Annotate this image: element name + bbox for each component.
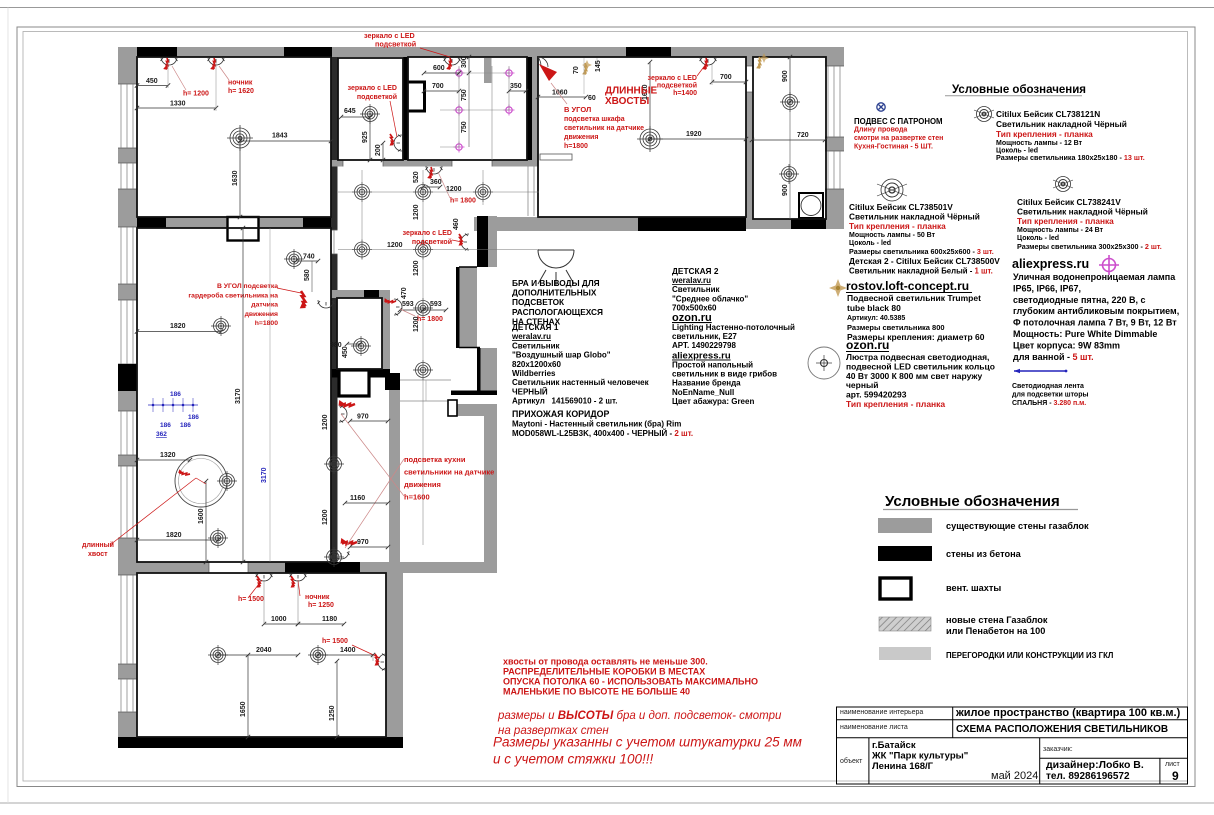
svg-text:IP65, IP66, IP67,: IP65, IP66, IP67, — [1013, 283, 1081, 293]
svg-text:h= 1800: h= 1800 — [450, 198, 476, 205]
svg-text:Wildberries: Wildberries — [512, 369, 556, 378]
svg-text:700: 700 — [432, 83, 444, 90]
svg-text:лист: лист — [1165, 761, 1180, 768]
svg-text:глубоким антибликовым покрытие: глубоким антибликовым покрытием, — [1013, 306, 1179, 316]
svg-text:ОПУСКА ПОТОЛКА 60 - ИСПОЛЬЗОВА: ОПУСКА ПОТОЛКА 60 - ИСПОЛЬЗОВАТЬ МАКСИМА… — [503, 677, 758, 687]
svg-text:светодиодные пятна, 220 В, с: светодиодные пятна, 220 В, с — [1013, 295, 1146, 305]
svg-text:186: 186 — [188, 414, 199, 421]
svg-text:Светильник накладной Чёрный: Светильник накладной Чёрный — [996, 119, 1127, 129]
svg-text:подсветкой: подсветкой — [375, 40, 416, 49]
svg-text:наименование листа: наименование листа — [840, 724, 908, 731]
svg-text:движения: движения — [564, 134, 598, 141]
svg-text:г.Батайск: г.Батайск — [872, 740, 916, 751]
svg-text:Мощность лампы - 12 Вт: Мощность лампы - 12 Вт — [996, 140, 1083, 147]
svg-text:925: 925 — [362, 131, 369, 143]
svg-text:1920: 1920 — [686, 131, 702, 138]
svg-text:Размеры светильника 300x25x300: Размеры светильника 300x25x300 - 2 шт. — [1017, 242, 1162, 251]
svg-text:350: 350 — [510, 83, 522, 90]
svg-text:450: 450 — [342, 346, 349, 358]
svg-text:май 2024: май 2024 — [991, 770, 1038, 782]
svg-text:тел. 89286196572: тел. 89286196572 — [1046, 771, 1130, 782]
svg-text:980: 980 — [330, 342, 342, 349]
svg-text:Название бренда: Название бренда — [672, 379, 741, 388]
svg-text:h= 1500: h= 1500 — [322, 638, 348, 645]
svg-text:ЧЕРНЫЙ: ЧЕРНЫЙ — [512, 387, 548, 396]
svg-text:СПАЛЬНЯ - 3.280 п.м.: СПАЛЬНЯ - 3.280 п.м. — [1012, 400, 1086, 407]
svg-text:h= 1500: h= 1500 — [238, 596, 264, 603]
svg-text:1600: 1600 — [198, 508, 205, 524]
svg-text:Цоколь - led: Цоколь - led — [1017, 235, 1059, 242]
svg-text:MOD058WL-L25B3K, 400x400 - ЧЕР: MOD058WL-L25B3K, 400x400 - ЧЕРНЫЙ - 2 шт… — [512, 429, 693, 438]
svg-text:арт. 599420293: арт. 599420293 — [846, 390, 907, 400]
svg-text:Светильник настенный человечек: Светильник настенный человечек — [512, 378, 650, 387]
svg-text:вент. шахты: вент. шахты — [946, 583, 1001, 593]
svg-text:ХВОСТЫ: ХВОСТЫ — [605, 96, 650, 107]
svg-text:1650: 1650 — [240, 701, 247, 717]
svg-text:NoEnName_Null: NoEnName_Null — [672, 388, 734, 397]
svg-text:черный: черный — [846, 380, 878, 390]
svg-text:Простой напольный: Простой напольный — [672, 361, 753, 370]
svg-text:БРА И ВЫВОДЫ ДЛЯ: БРА И ВЫВОДЫ ДЛЯ — [512, 278, 600, 288]
svg-text:h= 1620: h= 1620 — [228, 88, 254, 95]
svg-text:Условные обозначения: Условные обозначения — [952, 84, 1086, 96]
svg-text:200: 200 — [375, 144, 382, 156]
svg-text:aliexpress.ru: aliexpress.ru — [1012, 257, 1089, 271]
svg-text:Условные обозначения: Условные обозначения — [885, 493, 1060, 510]
svg-text:для ванной - 5 шт.: для ванной - 5 шт. — [1013, 352, 1094, 362]
svg-text:186: 186 — [180, 422, 191, 429]
svg-text:1200: 1200 — [413, 204, 420, 220]
svg-text:Размеры светильника 600x25x600: Размеры светильника 600x25x600 - 3 шт. — [849, 247, 994, 256]
svg-text:3170: 3170 — [261, 467, 268, 483]
svg-text:Ф потолочная лампа 7 Вт, 9 Вт,: Ф потолочная лампа 7 Вт, 9 Вт, 12 Вт — [1013, 318, 1177, 328]
svg-text:хвосты от провода оставлять не: хвосты от провода оставлять не меньше 30… — [503, 657, 708, 667]
svg-text:9: 9 — [1172, 769, 1179, 783]
svg-text:Светильник накладной Белый - 1: Светильник накладной Белый - 1 шт. — [849, 267, 993, 276]
svg-text:ozon.ru: ozon.ru — [846, 338, 889, 352]
svg-text:Тип крепления - планка: Тип крепления - планка — [849, 221, 946, 231]
svg-text:580: 580 — [304, 269, 311, 281]
svg-text:Citilux Бейсик CL738121N: Citilux Бейсик CL738121N — [996, 109, 1100, 119]
svg-text:1200: 1200 — [413, 316, 420, 332]
svg-text:светильник в виде грибов: светильник в виде грибов — [672, 370, 777, 379]
svg-text:1200: 1200 — [413, 260, 420, 276]
svg-text:зеркало с LED: зеркало с LED — [648, 75, 697, 82]
svg-text:1400: 1400 — [340, 647, 356, 654]
svg-text:зеркало с LED: зеркало с LED — [403, 230, 452, 237]
svg-text:движения: движения — [245, 311, 278, 318]
svg-text:750: 750 — [461, 121, 468, 133]
svg-text:460: 460 — [453, 218, 460, 230]
svg-text:ночник: ночник — [228, 80, 253, 87]
svg-text:объект: объект — [840, 757, 863, 765]
svg-text:подсветкой: подсветкой — [412, 238, 452, 246]
svg-text:900: 900 — [782, 70, 789, 82]
svg-text:Тип крепления - планка: Тип крепления - планка — [1017, 216, 1114, 226]
svg-text:Детская 2 - Citilux Бейсик CL7: Детская 2 - Citilux Бейсик CL738500V — [849, 256, 1000, 266]
svg-text:Тип крепления - планка: Тип крепления - планка — [846, 399, 945, 409]
svg-text:h=1800: h=1800 — [564, 143, 588, 150]
svg-text:смотри на развертке стен: смотри на развертке стен — [854, 135, 943, 142]
svg-text:В УГОЛ подсветка: В УГОЛ подсветка — [217, 283, 278, 290]
svg-text:70: 70 — [573, 66, 580, 74]
svg-text:В УГОЛ: В УГОЛ — [564, 105, 591, 114]
svg-text:Подвесной светильник Trumpet: Подвесной светильник Trumpet — [847, 293, 981, 303]
svg-text:Мощность лампы - 50 Вт: Мощность лампы - 50 Вт — [849, 232, 936, 239]
svg-text:h=1400: h=1400 — [673, 90, 697, 97]
svg-text:1200: 1200 — [322, 509, 329, 525]
svg-text:светильники на датчике: светильники на датчике — [404, 468, 494, 477]
svg-text:tube black 80: tube black 80 — [847, 303, 901, 313]
svg-text:подсветкой: подсветкой — [657, 82, 697, 90]
svg-text:h=1600: h=1600 — [404, 493, 430, 502]
svg-text:645: 645 — [344, 108, 356, 115]
svg-text:h= 1200: h= 1200 — [183, 91, 209, 98]
svg-text:новые стена Газаблок: новые стена Газаблок — [946, 615, 1048, 625]
svg-text:светильник, E27: светильник, E27 — [672, 332, 737, 341]
svg-text:заказчик:: заказчик: — [1043, 746, 1073, 753]
svg-text:длинный: длинный — [82, 541, 114, 549]
svg-text:ПРИХОЖАЯ КОРИДОР: ПРИХОЖАЯ КОРИДОР — [512, 409, 609, 419]
svg-text:Размеры указанны с учетом шту: Размеры указанны с учетом штукатурки 25 … — [493, 735, 802, 750]
svg-text:Размеры светильника 800: Размеры светильника 800 — [847, 323, 945, 332]
svg-text:1000: 1000 — [271, 616, 287, 623]
svg-text:3170: 3170 — [235, 388, 242, 404]
svg-text:жилое пространство (квартира 1: жилое пространство (квартира 100 кв.м.) — [955, 707, 1181, 719]
svg-text:weralav.ru: weralav.ru — [671, 276, 711, 285]
svg-text:470: 470 — [401, 287, 408, 299]
svg-text:186: 186 — [160, 422, 171, 429]
svg-text:Ленина 168/Г: Ленина 168/Г — [872, 761, 934, 772]
svg-text:Светильник: Светильник — [672, 285, 721, 294]
svg-text:ДОПОЛНИТЕЛЬНЫХ: ДОПОЛНИТЕЛЬНЫХ — [512, 288, 597, 298]
svg-text:РАСПРЕДЕЛИТЕЛЬНЫЕ КОРОБКИ В МЕ: РАСПРЕДЕЛИТЕЛЬНЫЕ КОРОБКИ В МЕСТАХ — [503, 667, 705, 677]
svg-text:зеркало с LED: зеркало с LED — [348, 85, 397, 92]
svg-text:РАСПОЛОГАЮЩЕХСЯ: РАСПОЛОГАЮЩЕХСЯ — [512, 307, 603, 317]
svg-text:h= 1800: h= 1800 — [417, 316, 443, 323]
svg-text:для подсветки шторы: для подсветки шторы — [1012, 392, 1088, 399]
svg-text:подсветка кухни: подсветка кухни — [404, 455, 466, 464]
svg-text:Citilux Бейсик CL738501V: Citilux Бейсик CL738501V — [849, 202, 953, 212]
svg-text:хвост: хвост — [88, 551, 108, 558]
svg-text:СХЕМА РАСПОЛОЖЕНИЯ СВЕТИЛЬНИКО: СХЕМА РАСПОЛОЖЕНИЯ СВЕТИЛЬНИКОВ — [956, 724, 1168, 735]
svg-text:"Среднее облачко": "Среднее облачко" — [672, 294, 748, 303]
svg-text:датчика: датчика — [251, 302, 278, 309]
svg-text:145: 145 — [595, 60, 602, 72]
svg-text:размеры и ВЫСОТЫ бра и доп. по: размеры и ВЫСОТЫ бра и доп. подсветок- с… — [497, 710, 782, 722]
svg-text:1320: 1320 — [160, 452, 176, 459]
svg-text:Люстра подвесная светодиодная,: Люстра подвесная светодиодная, — [846, 352, 989, 362]
svg-text:360: 360 — [430, 179, 442, 186]
svg-text:520: 520 — [413, 171, 420, 183]
svg-text:ДЕТСКАЯ 2: ДЕТСКАЯ 2 — [672, 266, 719, 276]
svg-text:450: 450 — [146, 78, 158, 85]
svg-text:Светильник накладной Чёрный: Светильник накладной Чёрный — [849, 212, 980, 222]
svg-text:1200: 1200 — [387, 242, 403, 249]
svg-text:1820: 1820 — [166, 532, 182, 539]
svg-text:970: 970 — [357, 414, 369, 421]
svg-text:720: 720 — [797, 132, 809, 139]
svg-text:АРТ. 1490229798: АРТ. 1490229798 — [672, 341, 736, 350]
svg-text:Maytoni - Настенный светильник: Maytoni - Настенный светильник (бра) Rim — [512, 420, 681, 429]
svg-text:или Пенабетон на 100: или Пенабетон на 100 — [946, 626, 1045, 636]
svg-text:ночник: ночник — [305, 594, 330, 601]
svg-text:ПЕРЕГОРОДКИ ИЛИ КОНСТРУКЦИИ ИЗ: ПЕРЕГОРОДКИ ИЛИ КОНСТРУКЦИИ ИЗ ГКЛ — [946, 651, 1113, 660]
svg-text:750: 750 — [461, 89, 468, 101]
svg-text:h=1800: h=1800 — [255, 320, 278, 327]
svg-text:Уличная водонепроницаемая ламп: Уличная водонепроницаемая лампа — [1013, 272, 1176, 282]
svg-text:593: 593 — [430, 301, 442, 308]
svg-text:ПОДСВЕТОК: ПОДСВЕТОК — [512, 297, 565, 307]
svg-text:1060: 1060 — [552, 90, 568, 97]
svg-text:Светильник: Светильник — [512, 341, 561, 350]
svg-text:ПОДВЕС С ПАТРОНОМ: ПОДВЕС С ПАТРОНОМ — [854, 117, 943, 126]
svg-text:60: 60 — [588, 95, 596, 102]
svg-text:593: 593 — [402, 301, 414, 308]
svg-text:weralav.ru: weralav.ru — [511, 332, 551, 341]
svg-text:ДЛИННЫЕ: ДЛИННЫЕ — [605, 86, 658, 97]
svg-text:300: 300 — [461, 56, 468, 68]
svg-text:970: 970 — [357, 539, 369, 546]
svg-text:гардероба светильника на: гардероба светильника на — [188, 291, 278, 299]
svg-text:"Воздушный шар Globo": "Воздушный шар Globo" — [512, 351, 611, 360]
svg-text:ДЕТСКАЯ 1: ДЕТСКАЯ 1 — [512, 322, 559, 332]
svg-text:и с учетом стяжки 100!!!: и с учетом стяжки 100!!! — [493, 752, 653, 767]
svg-text:Размеры светильника 180x25x180: Размеры светильника 180x25x180 - 13 шт. — [996, 153, 1145, 162]
svg-text:h= 1250: h= 1250 — [308, 602, 334, 609]
svg-text:1843: 1843 — [272, 133, 288, 140]
svg-text:600: 600 — [433, 65, 445, 72]
svg-text:Цвет корпуса: 9W 83mm: Цвет корпуса: 9W 83mm — [1013, 340, 1120, 350]
svg-text:Артикул 141569010 - 2 шт.: Артикул 141569010 - 2 шт. — [512, 397, 617, 406]
svg-text:rostov.loft-concept.ru: rostov.loft-concept.ru — [846, 279, 969, 293]
svg-text:стены из бетона: стены из бетона — [946, 549, 1022, 559]
svg-text:наименование интерьера: наименование интерьера — [840, 709, 923, 716]
svg-text:900: 900 — [782, 184, 789, 196]
svg-text:светильник на датчике: светильник на датчике — [564, 125, 644, 132]
svg-text:Тип крепления - планка: Тип крепления - планка — [996, 129, 1093, 139]
svg-text:Длину провода: Длину провода — [854, 127, 907, 134]
svg-text:существующие стены газаблок: существующие стены газаблок — [946, 521, 1089, 531]
svg-text:1180: 1180 — [322, 616, 337, 623]
svg-text:Кухня-Гостиная - 5 ШТ.: Кухня-Гостиная - 5 ШТ. — [854, 144, 933, 151]
svg-text:700: 700 — [720, 74, 732, 81]
svg-text:1250: 1250 — [329, 705, 336, 721]
svg-text:Светильник накладной Чёрный: Светильник накладной Чёрный — [1017, 207, 1148, 217]
svg-text:МАЛЕНЬКИЕ ПО ВЫСОТЕ НЕ БОЛЬШЕ: МАЛЕНЬКИЕ ПО ВЫСОТЕ НЕ БОЛЬШЕ 40 — [503, 687, 690, 697]
svg-text:ЖК "Парк культуры": ЖК "Парк культуры" — [871, 751, 968, 762]
svg-text:Светодиодная лента: Светодиодная лента — [1012, 383, 1084, 390]
svg-text:подвесной LED светильник кольц: подвесной LED светильник кольцо — [846, 362, 995, 372]
svg-text:подсветкой: подсветкой — [357, 93, 397, 101]
svg-text:Цвет абажура: Green: Цвет абажура: Green — [672, 397, 754, 406]
svg-text:1630: 1630 — [232, 170, 239, 186]
svg-text:движения: движения — [404, 480, 441, 489]
svg-text:1200: 1200 — [322, 414, 329, 430]
svg-text:подсветка шкафа: подсветка шкафа — [564, 116, 625, 123]
svg-text:Мощность: Pure White Dimmable: Мощность: Pure White Dimmable — [1013, 329, 1157, 339]
svg-text:Citilux Бейсик CL738241V: Citilux Бейсик CL738241V — [1017, 197, 1121, 207]
svg-text:1160: 1160 — [350, 495, 365, 502]
svg-text:Мощность лампы - 24 Вт: Мощность лампы - 24 Вт — [1017, 227, 1104, 234]
svg-text:Цоколь - led: Цоколь - led — [849, 240, 891, 247]
svg-text:186: 186 — [170, 391, 181, 398]
svg-text:1820: 1820 — [170, 323, 186, 330]
svg-text:1330: 1330 — [170, 101, 186, 108]
svg-text:2040: 2040 — [256, 647, 272, 654]
svg-text:362: 362 — [156, 431, 167, 438]
svg-text:дизайнер:Лобко В.: дизайнер:Лобко В. — [1046, 759, 1144, 771]
svg-text:740: 740 — [303, 254, 315, 261]
svg-text:Lighting Настенно-потолочный: Lighting Настенно-потолочный — [672, 323, 795, 332]
svg-text:820x1200x60: 820x1200x60 — [512, 360, 561, 369]
svg-text:Артикул: 40.5385: Артикул: 40.5385 — [847, 315, 905, 322]
